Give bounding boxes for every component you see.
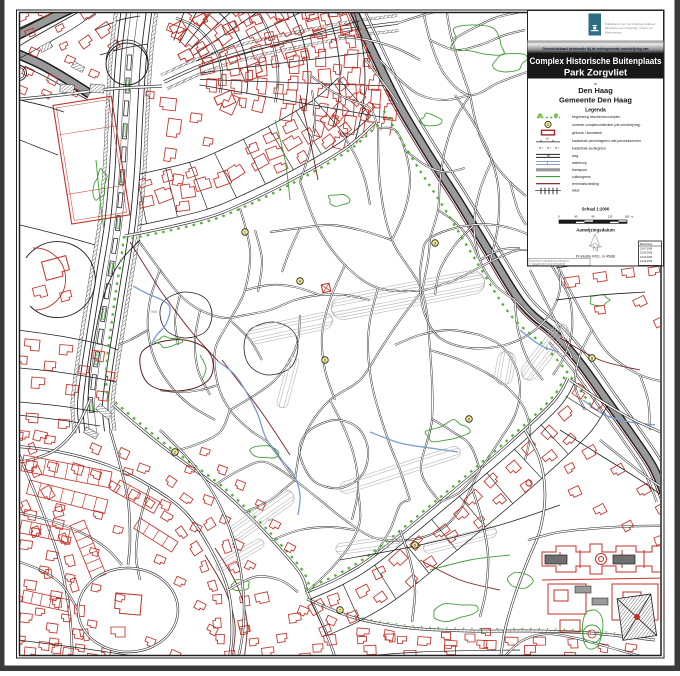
svg-text:Aanwijzingsdatum: Aanwijzingsdatum: [576, 228, 615, 233]
svg-text:cultuurgrens: cultuurgrens: [572, 175, 591, 179]
svg-text:waterloop: waterloop: [572, 161, 587, 165]
svg-text:Legenda: Legenda: [585, 108, 606, 114]
svg-text:45: 45: [574, 215, 578, 219]
svg-text:talud: talud: [572, 189, 579, 193]
svg-text:© Copyright dienst voor het Ka: © Copyright dienst voor het Kadaster: [530, 263, 566, 266]
svg-text:N: N: [593, 245, 599, 254]
svg-text:nummer complexonderdeel (zie o: nummer complexonderdeel (zie omschrijvin…: [572, 123, 640, 127]
svg-text:Wetenschap: Wetenschap: [605, 30, 622, 34]
svg-text:tramspoor: tramspoor: [572, 168, 588, 172]
svg-text:Gemeente Den Haag: Gemeente Den Haag: [559, 96, 632, 105]
svg-text:23-07-2006: 23-07-2006: [640, 248, 653, 251]
svg-text:kadastrale perceelsgrens met p: kadastrale perceelsgrens met perceelnumm…: [572, 139, 642, 143]
svg-text:23-09-2002: 23-09-2002: [640, 260, 653, 263]
svg-text:1: 1: [547, 123, 549, 127]
svg-text:135: 135: [608, 215, 613, 219]
svg-text:90: 90: [591, 215, 595, 219]
svg-text:Bewerking: Bewerking: [640, 242, 653, 246]
svg-text:7496: 7496: [150, 310, 157, 314]
svg-text:7494: 7494: [266, 518, 273, 522]
svg-text:Kadastrale en topografische on: Kadastrale en topografische ondergrond: [530, 260, 570, 263]
svg-text:gebouw / kunstwerk: gebouw / kunstwerk: [572, 131, 602, 135]
svg-text:kadastrale sectiegrens: kadastrale sectiegrens: [572, 147, 606, 151]
svg-text:23-03-2006: 23-03-2006: [640, 256, 653, 259]
svg-text:23-03-2006: 23-03-2006: [640, 252, 653, 255]
svg-text:7499: 7499: [520, 303, 527, 307]
svg-text:Schaal 1:2000: Schaal 1:2000: [582, 207, 610, 212]
svg-text:Park Zorgvliet: Park Zorgvliet: [564, 68, 628, 79]
svg-text:Complex Historische Buitenplaa: Complex Historische Buitenplaats: [530, 56, 662, 67]
svg-text:180: 180: [625, 215, 630, 219]
svg-text:Den Haag: Den Haag: [578, 86, 613, 95]
svg-text:Overzichtskaart behorende bij: Overzichtskaart behorende bij de redenge…: [542, 47, 648, 51]
svg-text:Productie RCE, nr 45/88: Productie RCE, nr 45/88: [576, 255, 615, 259]
svg-text:begrenzing beschermd complex: begrenzing beschermd complex: [572, 115, 620, 119]
svg-text:terreinafscheiding: terreinafscheiding: [572, 182, 599, 186]
svg-text:weg: weg: [572, 154, 578, 158]
